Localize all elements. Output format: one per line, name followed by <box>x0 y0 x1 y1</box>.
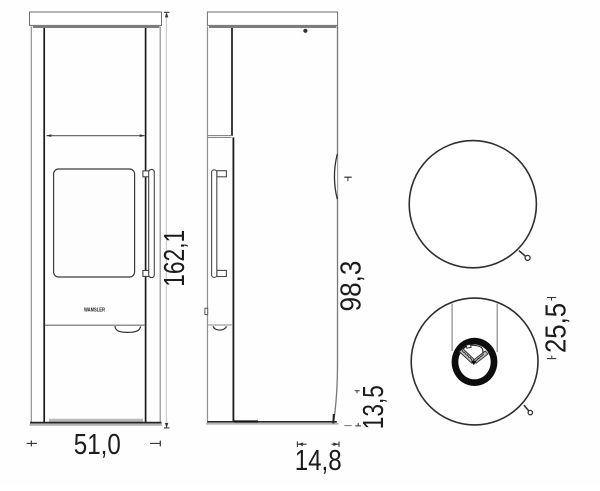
svg-text:WAMSLER: WAMSLER <box>84 308 105 314</box>
svg-text:14,8: 14,8 <box>295 445 342 477</box>
svg-text:25,5: 25,5 <box>541 303 573 353</box>
svg-text:98,3: 98,3 <box>336 261 368 312</box>
svg-text:13,5: 13,5 <box>358 385 390 429</box>
svg-text:162,1: 162,1 <box>159 230 191 287</box>
svg-text:51,0: 51,0 <box>74 429 121 461</box>
